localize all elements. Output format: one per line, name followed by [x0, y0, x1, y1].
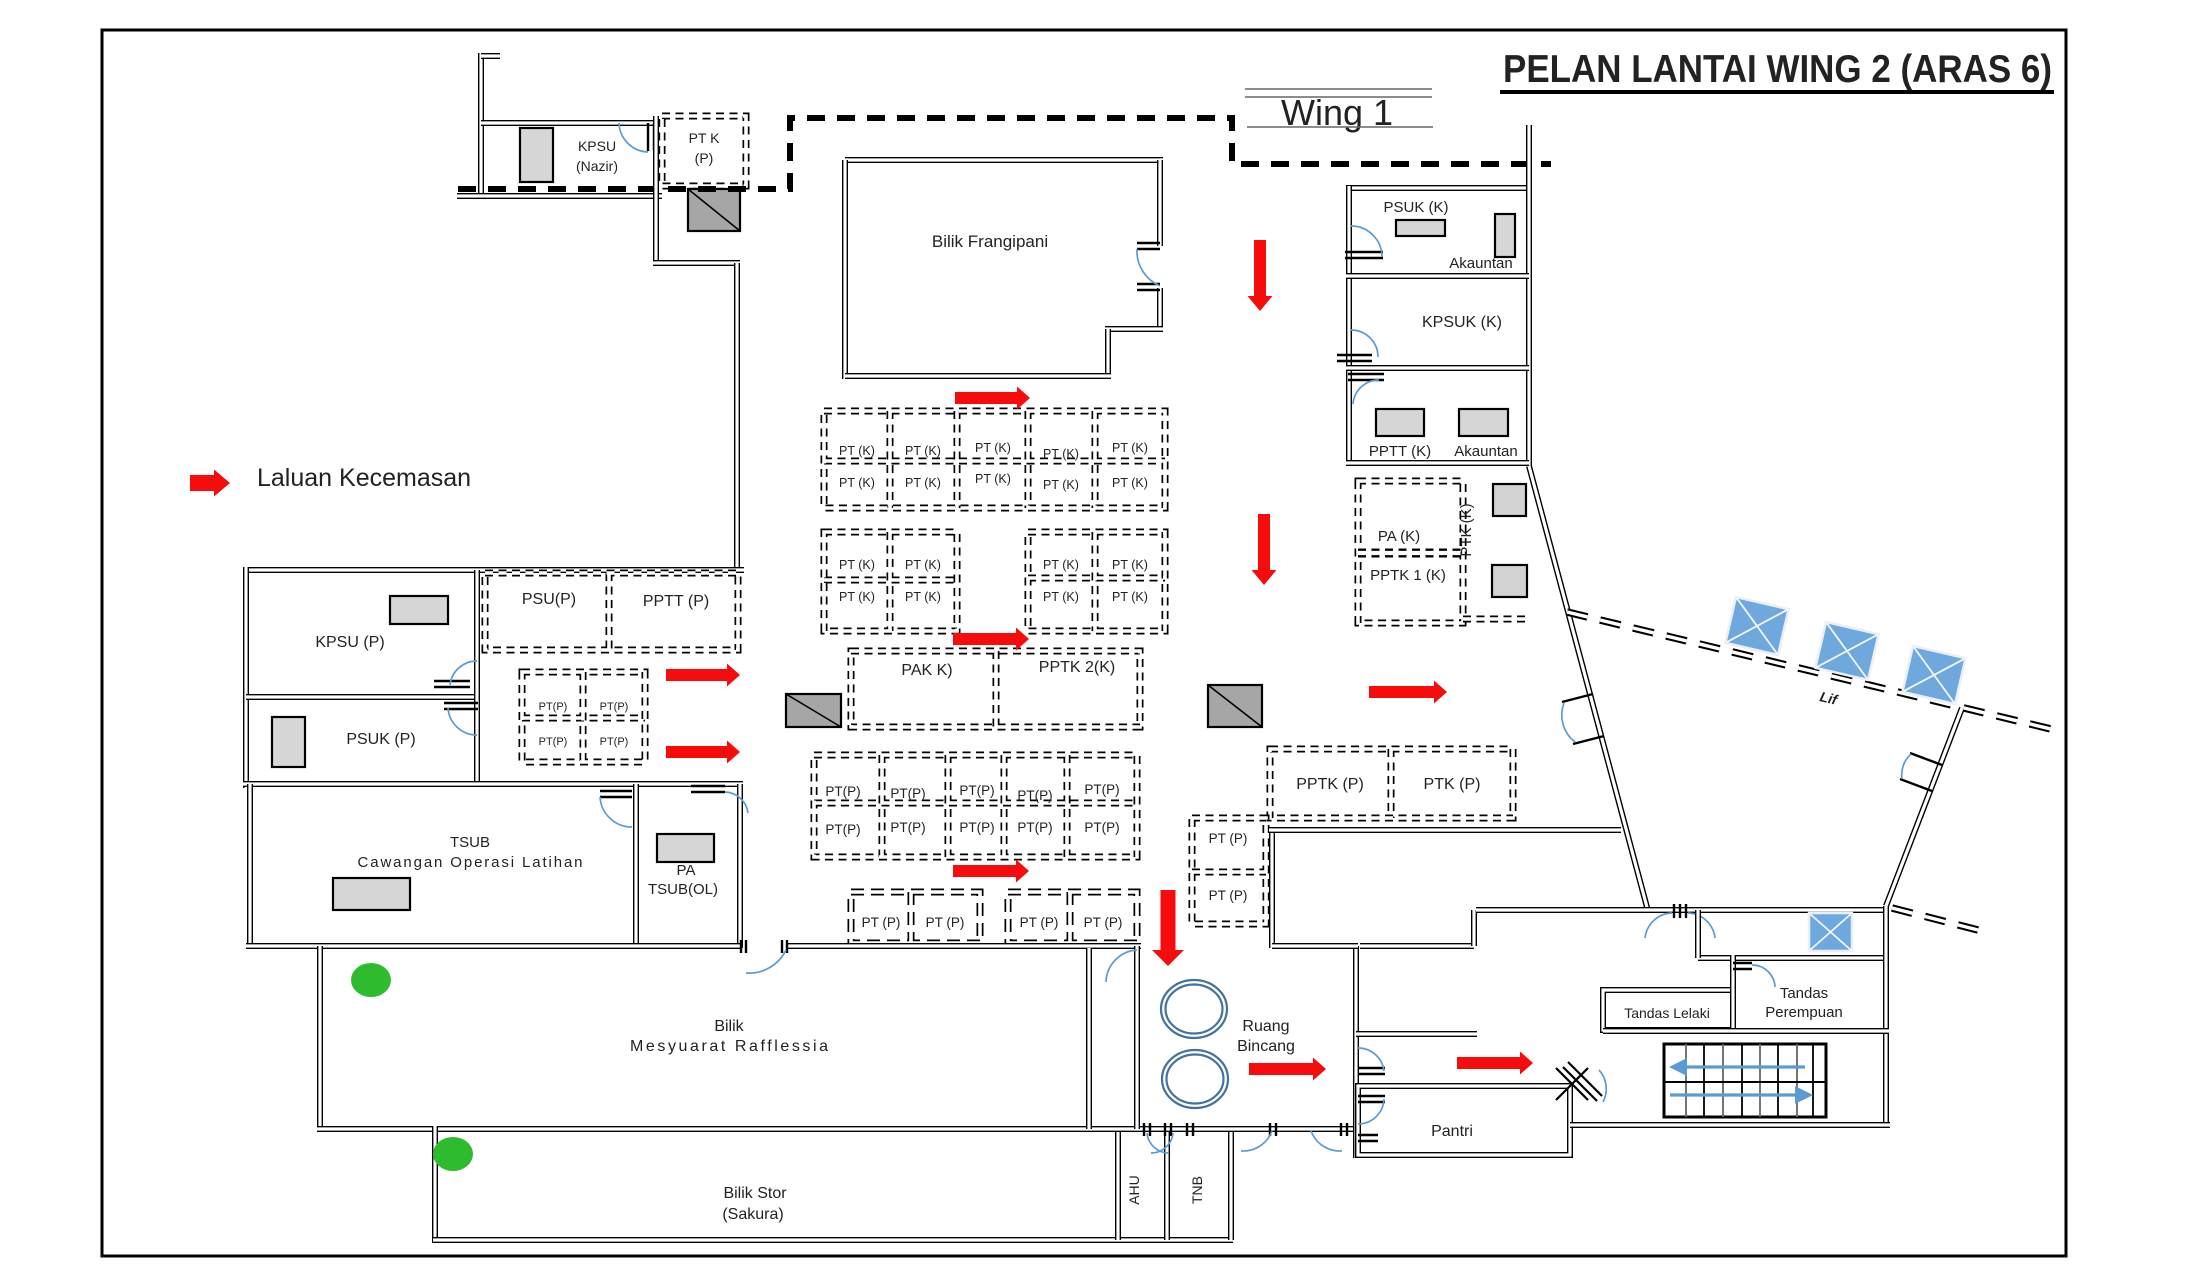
svg-text:PTK (P): PTK (P)	[1424, 776, 1481, 793]
svg-text:PT (K): PT (K)	[1112, 441, 1148, 455]
svg-text:PT(P): PT(P)	[825, 822, 860, 837]
svg-text:PTK (K): PTK (K)	[1458, 503, 1475, 556]
svg-text:PPTK 2(K): PPTK 2(K)	[1039, 659, 1115, 676]
svg-text:PA (K): PA (K)	[1378, 528, 1420, 545]
svg-text:KPSU (P): KPSU (P)	[315, 634, 384, 651]
svg-text:PT (K): PT (K)	[1043, 447, 1079, 461]
svg-text:(Sakura): (Sakura)	[722, 1206, 783, 1223]
svg-text:PSU(P): PSU(P)	[522, 591, 576, 608]
svg-text:TNB: TNB	[1189, 1176, 1205, 1204]
svg-text:KPSUK (K): KPSUK (K)	[1422, 314, 1502, 331]
svg-text:PAK K): PAK K)	[901, 662, 952, 679]
svg-text:PT(P): PT(P)	[1017, 788, 1052, 803]
svg-text:PT (K): PT (K)	[1043, 558, 1079, 572]
svg-text:Perempuan: Perempuan	[1765, 1004, 1843, 1021]
svg-text:PT (K): PT (K)	[1043, 478, 1079, 492]
svg-text:TSUB(OL): TSUB(OL)	[648, 881, 718, 898]
svg-text:PA: PA	[677, 862, 696, 879]
svg-text:PT (P): PT (P)	[862, 915, 901, 930]
svg-text:PPTK (P): PPTK (P)	[1296, 776, 1364, 793]
svg-text:PT(P): PT(P)	[890, 786, 925, 801]
svg-text:(Nazir): (Nazir)	[576, 158, 618, 174]
svg-text:KPSU: KPSU	[578, 138, 616, 154]
svg-text:Ruang: Ruang	[1242, 1018, 1289, 1035]
svg-text:Akauntan: Akauntan	[1454, 443, 1517, 460]
svg-text:PT(P): PT(P)	[539, 701, 568, 713]
svg-text:PT (K): PT (K)	[905, 476, 941, 490]
svg-text:Tandas: Tandas	[1780, 985, 1828, 1002]
svg-text:PSUK (P): PSUK (P)	[346, 731, 415, 748]
svg-text:PELAN LANTAI WING 2 (ARAS 6): PELAN LANTAI WING 2 (ARAS 6)	[1503, 48, 2052, 91]
svg-text:Bilik Stor: Bilik Stor	[723, 1185, 787, 1202]
svg-text:PT (P): PT (P)	[1020, 915, 1059, 930]
svg-text:PPTT (P): PPTT (P)	[643, 593, 709, 610]
svg-text:PT (P): PT (P)	[1084, 915, 1123, 930]
svg-text:PT (P): PT (P)	[1209, 831, 1248, 846]
svg-text:PT (K): PT (K)	[1112, 476, 1148, 490]
svg-text:PPTT (K): PPTT (K)	[1369, 443, 1431, 460]
svg-text:PT (K): PT (K)	[839, 444, 875, 458]
svg-text:PT(P): PT(P)	[539, 736, 568, 748]
svg-text:PT (K): PT (K)	[1112, 558, 1148, 572]
svg-text:PT (K): PT (K)	[905, 558, 941, 572]
svg-text:Pantri: Pantri	[1431, 1123, 1473, 1140]
svg-text:Tandas Lelaki: Tandas Lelaki	[1624, 1005, 1710, 1021]
svg-text:PT (K): PT (K)	[975, 441, 1011, 455]
svg-text:PT(P): PT(P)	[890, 820, 925, 835]
svg-text:AHU: AHU	[1126, 1175, 1142, 1205]
svg-text:Bilik Frangipani: Bilik Frangipani	[932, 232, 1048, 251]
svg-text:PT (P): PT (P)	[926, 915, 965, 930]
svg-text:Laluan Kecemasan: Laluan Kecemasan	[257, 464, 471, 492]
svg-text:PT (K): PT (K)	[905, 590, 941, 604]
svg-text:PT (P): PT (P)	[1209, 888, 1248, 903]
svg-text:PT(P): PT(P)	[959, 783, 994, 798]
svg-text:PT(P): PT(P)	[1084, 820, 1119, 835]
svg-text:PT(P): PT(P)	[825, 784, 860, 799]
svg-text:PT (K): PT (K)	[905, 444, 941, 458]
svg-text:(P): (P)	[695, 150, 714, 166]
svg-text:PT (K): PT (K)	[839, 590, 875, 604]
svg-text:PT (K): PT (K)	[839, 476, 875, 490]
svg-text:Cawangan Operasi Latihan: Cawangan Operasi Latihan	[358, 854, 583, 871]
svg-text:PT (K): PT (K)	[975, 472, 1011, 486]
svg-text:PT K: PT K	[689, 130, 721, 146]
svg-text:Bincang: Bincang	[1237, 1038, 1295, 1055]
svg-text:PT(P): PT(P)	[959, 820, 994, 835]
svg-text:PT (K): PT (K)	[839, 558, 875, 572]
svg-text:PSUK (K): PSUK (K)	[1383, 199, 1448, 216]
svg-text:PT(P): PT(P)	[1084, 782, 1119, 797]
svg-text:Bilik: Bilik	[714, 1018, 744, 1035]
svg-text:Mesyuarat Rafflessia: Mesyuarat Rafflessia	[630, 1038, 828, 1055]
svg-text:PT(P): PT(P)	[1017, 820, 1052, 835]
svg-text:PT (K): PT (K)	[1112, 590, 1148, 604]
svg-text:PT(P): PT(P)	[600, 701, 629, 713]
svg-text:TSUB: TSUB	[450, 834, 490, 851]
svg-text:PPTK 1 (K): PPTK 1 (K)	[1370, 567, 1446, 584]
svg-text:PT(P): PT(P)	[600, 736, 629, 748]
svg-text:Akauntan: Akauntan	[1449, 255, 1512, 272]
svg-text:PT (K): PT (K)	[1043, 590, 1079, 604]
